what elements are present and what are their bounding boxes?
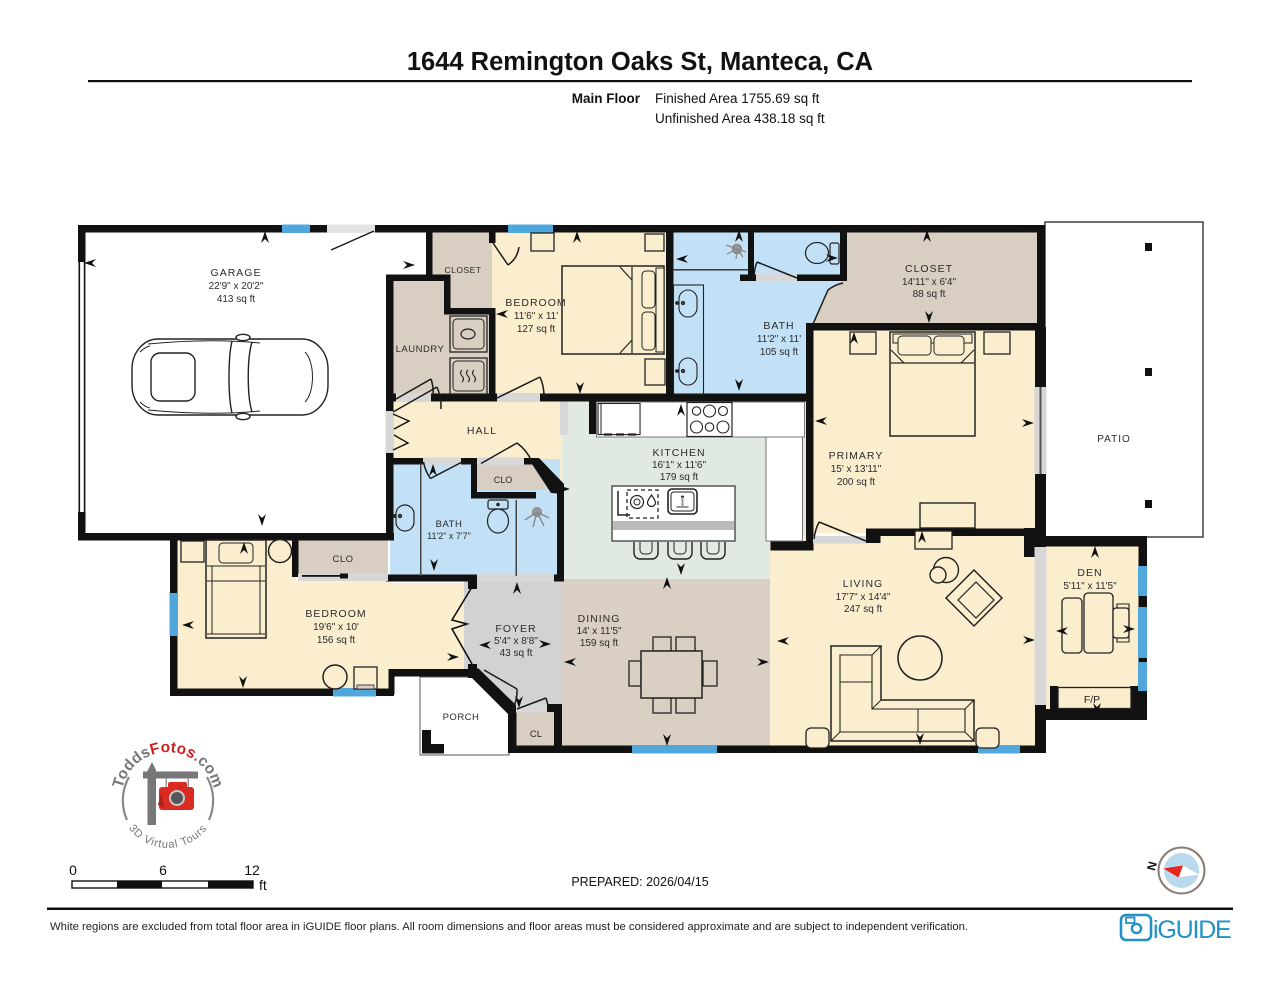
svg-text:LIVING: LIVING	[843, 578, 883, 590]
svg-text:KITCHEN: KITCHEN	[652, 447, 705, 459]
svg-text:CLOSET: CLOSET	[444, 265, 481, 275]
svg-text:5'4" x 8'8": 5'4" x 8'8"	[494, 636, 538, 647]
svg-text:F/P: F/P	[1084, 694, 1100, 706]
svg-text:11'6" x 11': 11'6" x 11'	[514, 311, 558, 322]
svg-text:127 sq ft: 127 sq ft	[517, 324, 556, 335]
svg-text:159 sq ft: 159 sq ft	[580, 638, 619, 649]
svg-text:BEDROOM: BEDROOM	[505, 297, 566, 309]
svg-text:LAUNDRY: LAUNDRY	[396, 344, 445, 355]
svg-text:200 sq ft: 200 sq ft	[837, 477, 876, 488]
svg-text:iGUIDE: iGUIDE	[1153, 916, 1231, 944]
svg-text:CLOSET: CLOSET	[905, 263, 953, 275]
svg-text:FOYER: FOYER	[495, 623, 536, 635]
svg-text:179 sq ft: 179 sq ft	[660, 472, 699, 483]
svg-text:11'2" x 11': 11'2" x 11'	[757, 334, 801, 345]
svg-text:Unfinished Area 438.18 sq ft: Unfinished Area 438.18 sq ft	[655, 111, 825, 126]
svg-text:BATH: BATH	[436, 519, 463, 530]
svg-text:PREPARED: 2026/04/15: PREPARED: 2026/04/15	[571, 875, 708, 889]
svg-text:12: 12	[244, 862, 260, 878]
svg-text:413 sq ft: 413 sq ft	[217, 294, 256, 305]
svg-text:ToddsFotos.com: ToddsFotos.com	[110, 739, 227, 790]
svg-text:PATIO: PATIO	[1097, 434, 1131, 445]
svg-text:PRIMARY: PRIMARY	[829, 450, 884, 462]
svg-text:ft: ft	[259, 877, 267, 893]
svg-text:6: 6	[159, 862, 167, 878]
svg-text:HALL: HALL	[467, 425, 497, 437]
svg-text:CLO: CLO	[494, 475, 513, 485]
svg-text:1644 Remington Oaks St, Mantec: 1644 Remington Oaks St, Manteca, CA	[407, 48, 873, 76]
svg-text:19'6" x 10': 19'6" x 10'	[313, 622, 359, 633]
svg-text:5'11" x 11'5": 5'11" x 11'5"	[1063, 581, 1117, 592]
svg-text:PORCH: PORCH	[443, 712, 480, 723]
svg-text:BATH: BATH	[763, 320, 794, 332]
svg-text:11'2" x 7'7": 11'2" x 7'7"	[427, 531, 471, 541]
svg-text:17'7" x 14'4": 17'7" x 14'4"	[836, 592, 891, 603]
svg-text:N: N	[1144, 860, 1160, 872]
svg-text:16'1" x 11'6": 16'1" x 11'6"	[652, 460, 707, 471]
svg-text:247 sq ft: 247 sq ft	[844, 604, 883, 615]
svg-text:22'9" x 20'2": 22'9" x 20'2"	[209, 281, 264, 292]
svg-text:White regions are excluded fro: White regions are excluded from total fl…	[50, 921, 968, 933]
svg-text:88 sq ft: 88 sq ft	[913, 289, 946, 300]
svg-text:Main Floor: Main Floor	[572, 91, 641, 106]
svg-text:BEDROOM: BEDROOM	[305, 608, 366, 620]
svg-text:CLO: CLO	[332, 554, 353, 565]
svg-text:14' x 11'5": 14' x 11'5"	[577, 626, 622, 637]
svg-text:Finished Area 1755.69 sq ft: Finished Area 1755.69 sq ft	[655, 91, 820, 106]
svg-text:DEN: DEN	[1077, 567, 1102, 579]
svg-text:156 sq ft: 156 sq ft	[317, 635, 356, 646]
svg-text:DINING: DINING	[578, 613, 621, 625]
svg-text:15' x 13'11": 15' x 13'11"	[831, 464, 882, 475]
svg-text:CL: CL	[530, 729, 542, 740]
svg-text:3D Virtual Tours: 3D Virtual Tours	[126, 822, 209, 851]
svg-text:GARAGE: GARAGE	[211, 267, 262, 279]
svg-text:0: 0	[69, 862, 77, 878]
svg-text:43 sq ft: 43 sq ft	[500, 648, 533, 659]
svg-text:105 sq ft: 105 sq ft	[760, 347, 799, 358]
svg-text:14'11" x 6'4": 14'11" x 6'4"	[902, 277, 957, 288]
